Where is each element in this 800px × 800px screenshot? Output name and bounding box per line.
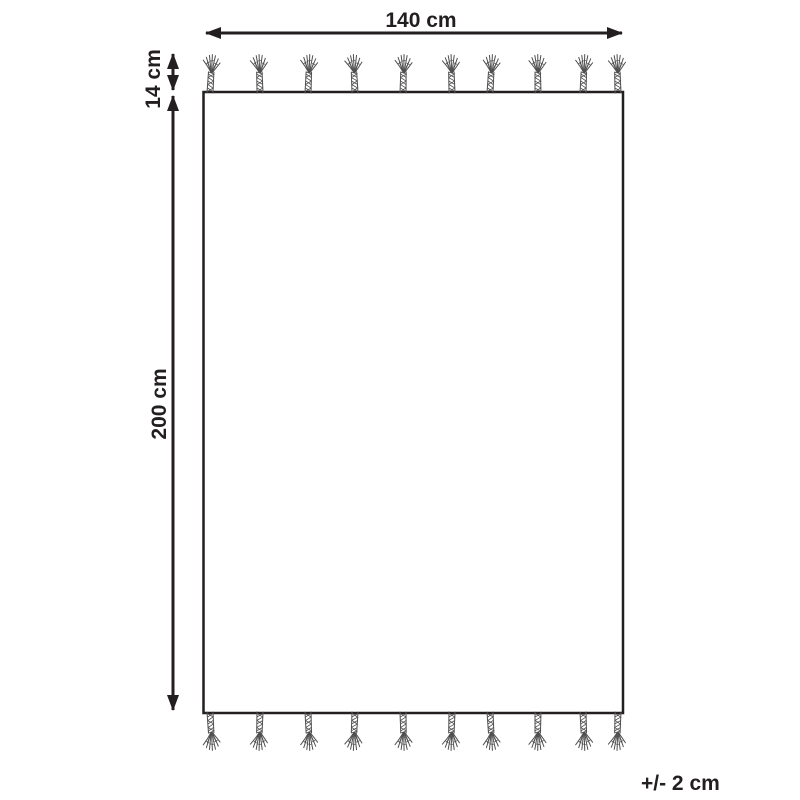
tassel: [395, 712, 413, 751]
tassel: [529, 54, 547, 93]
tolerance-label: +/- 2 cm: [641, 772, 720, 795]
rug-outline: [204, 92, 624, 713]
fringe-dimension-label: 14 cm: [142, 49, 165, 109]
tassel: [442, 712, 460, 751]
tassel: [482, 712, 501, 751]
tassel: [482, 54, 501, 93]
product-dimension-diagram: 140 cm 14 cm 200 cm +/- 2 cm: [0, 0, 800, 800]
tassel: [250, 54, 268, 93]
tassel: [442, 54, 460, 93]
fringe-top: [202, 54, 627, 93]
tassel: [575, 712, 593, 751]
tassel: [608, 54, 626, 93]
tassel: [529, 712, 547, 751]
width-dimension-label: 140 cm: [385, 9, 456, 32]
fringe-bottom: [202, 712, 627, 751]
tassel: [202, 54, 221, 93]
tassel: [300, 54, 318, 93]
tassel: [300, 712, 318, 751]
tassel: [344, 54, 363, 93]
tassel: [575, 54, 593, 93]
rug-diagram-svg: 140 cm 14 cm 200 cm +/- 2 cm: [0, 0, 800, 800]
tassel: [344, 712, 363, 751]
tassel: [202, 712, 221, 751]
tassel: [395, 54, 413, 93]
tassel: [608, 712, 626, 751]
height-dimension-label: 200 cm: [148, 368, 171, 439]
tassel: [250, 712, 268, 751]
